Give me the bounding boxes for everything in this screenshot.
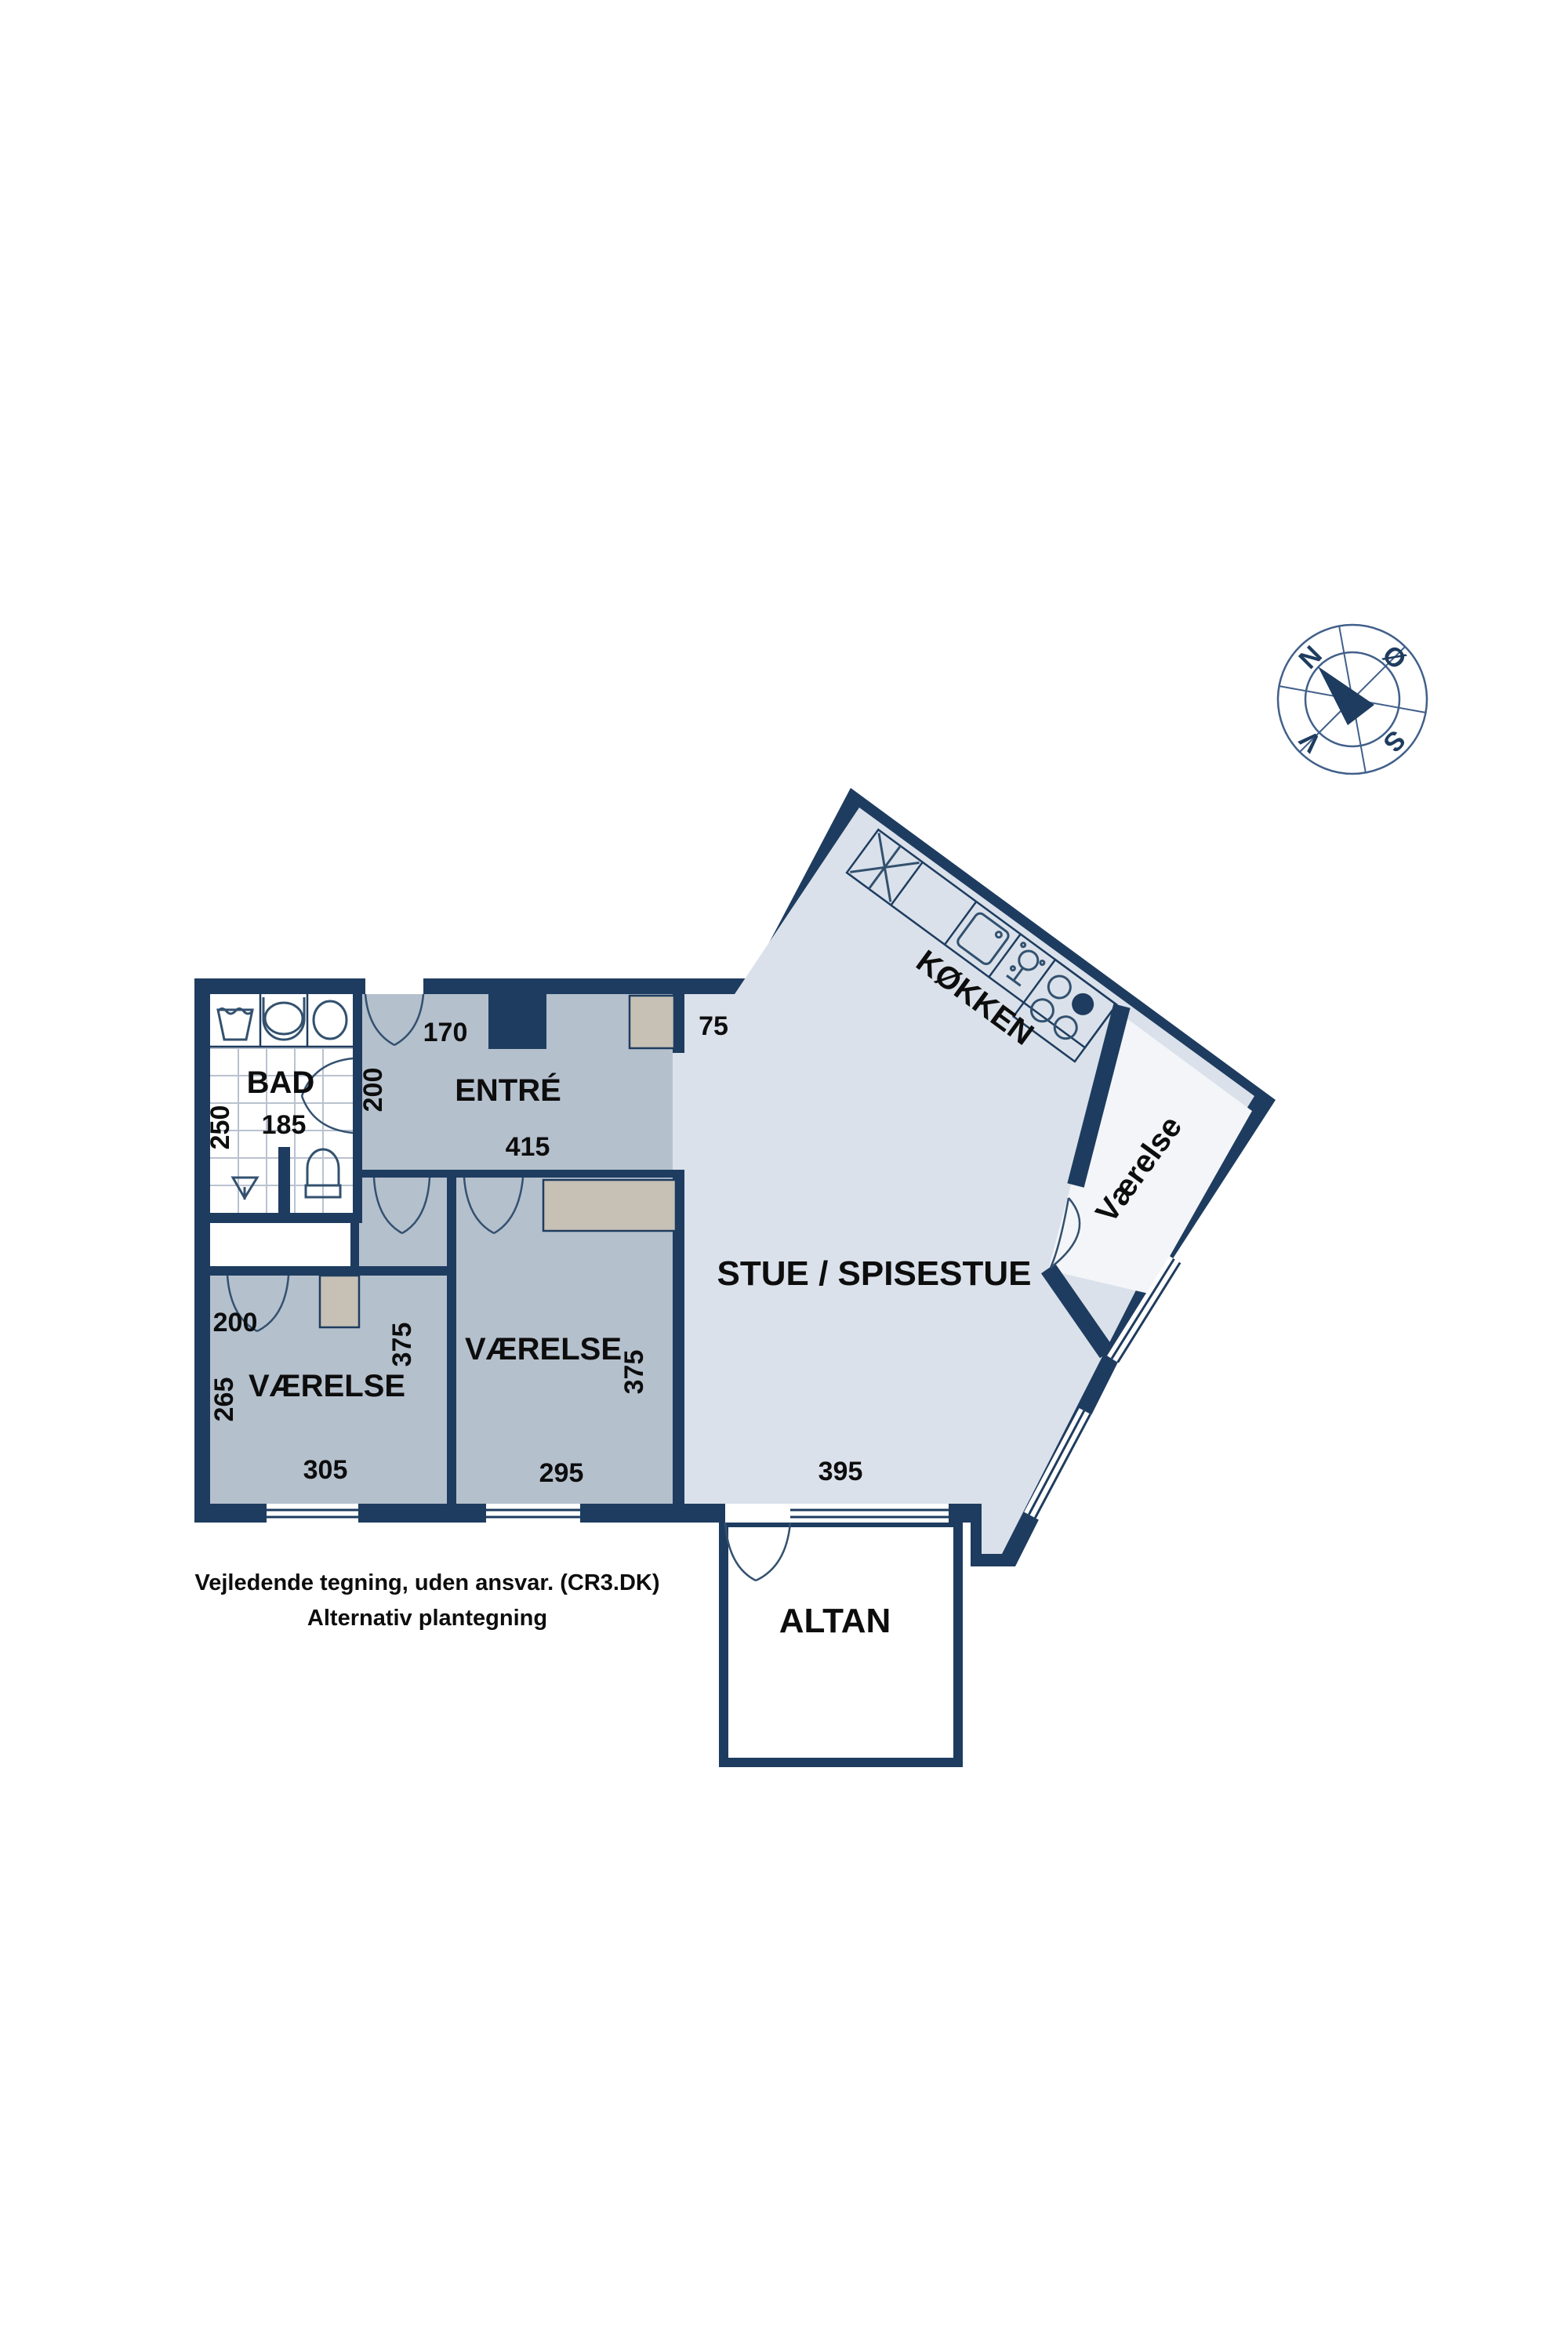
meas-left-room-width: 305 [303,1455,348,1485]
balcony [724,1523,958,1762]
meas-closet-width: 200 [213,1308,258,1338]
compass-rose: N Ø S V [1278,625,1427,774]
meas-left-room-right: 375 [387,1323,417,1367]
meas-stue-width: 395 [818,1457,863,1486]
meas-entre-height: 200 [358,1068,388,1112]
meas-wall-stub: 75 [699,1011,728,1041]
wardrobe-middle-room [543,1180,676,1231]
label-middle-room: VÆRELSE [465,1332,622,1367]
label-balcony: ALTAN [779,1602,891,1640]
label-left-room: VÆRELSE [249,1369,405,1403]
meas-left-room-left: 265 [209,1377,239,1422]
meas-bad-width: 185 [262,1110,307,1140]
meas-mid-room-right: 375 [619,1350,649,1395]
wardrobe-left-room [320,1276,359,1327]
floorplan-page: BAD ENTRÉ VÆRELSE VÆRELSE STUE / SPISEST… [0,0,1568,2352]
footer-disclaimer: Vejledende tegning, uden ansvar. (CR3.DK… [194,1570,659,1595]
window-middle-room [486,1504,580,1523]
meas-entre-door: 170 [423,1018,468,1047]
footer-drawing-type: Alternativ plantegning [307,1606,547,1631]
balcony-outline [724,1523,958,1762]
window-left-room [267,1504,358,1523]
label-hallway: ENTRÉ [455,1073,561,1108]
floorplan-canvas: BAD ENTRÉ VÆRELSE VÆRELSE STUE / SPISEST… [0,0,1568,2352]
meas-bad-depth: 250 [205,1105,235,1150]
meas-mid-room-width: 295 [539,1458,584,1488]
window-livingroom [790,1504,949,1523]
label-livingroom: STUE / SPISESTUE [717,1254,1032,1293]
meas-entre-width: 415 [506,1132,550,1162]
closet-niche [210,1223,350,1266]
wardrobe-hallway [630,996,674,1048]
label-bathroom: BAD [247,1065,315,1100]
